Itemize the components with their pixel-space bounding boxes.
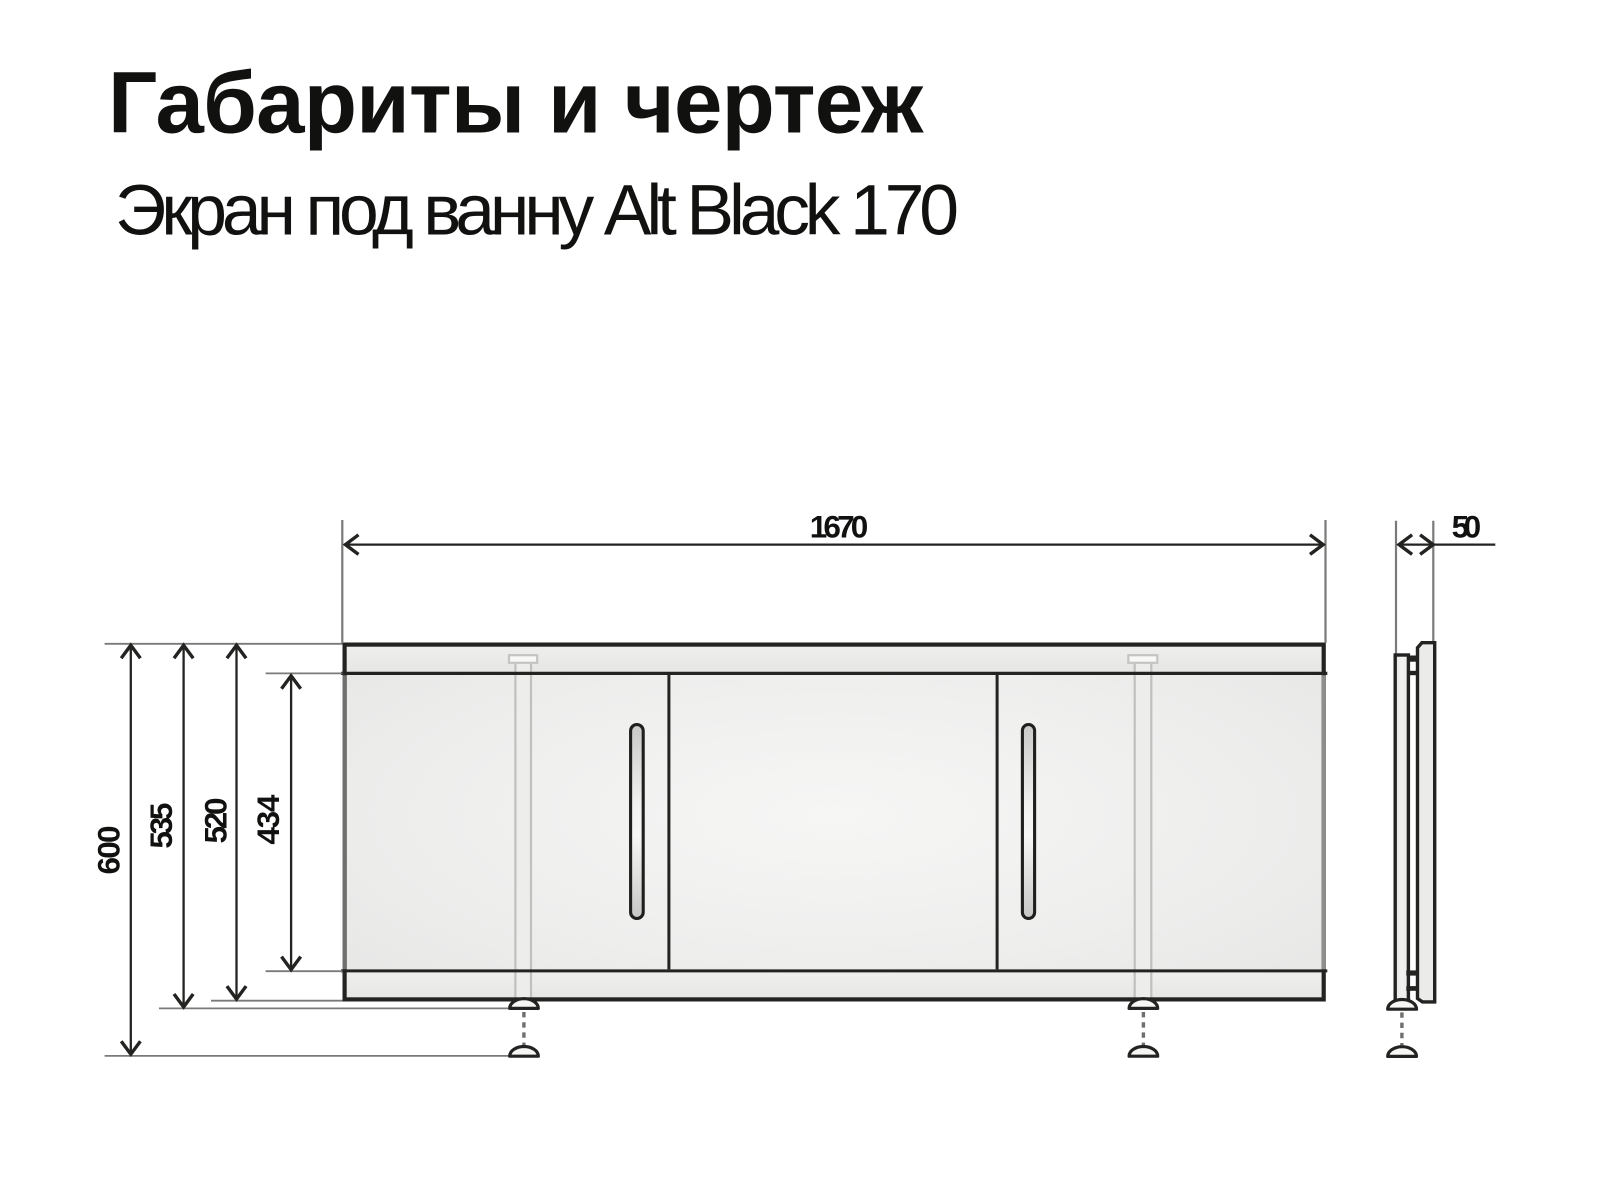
svg-text:Габариты и чертеж: Габариты и чертеж	[108, 55, 924, 152]
svg-text:434: 434	[250, 794, 286, 844]
svg-text:1670: 1670	[810, 508, 869, 544]
svg-text:535: 535	[143, 803, 179, 849]
svg-text:Экран под ванну Alt Black 170: Экран под ванну Alt Black 170	[115, 170, 959, 250]
svg-text:600: 600	[90, 826, 126, 875]
svg-text:50: 50	[1452, 508, 1482, 544]
svg-text:520: 520	[197, 798, 233, 844]
